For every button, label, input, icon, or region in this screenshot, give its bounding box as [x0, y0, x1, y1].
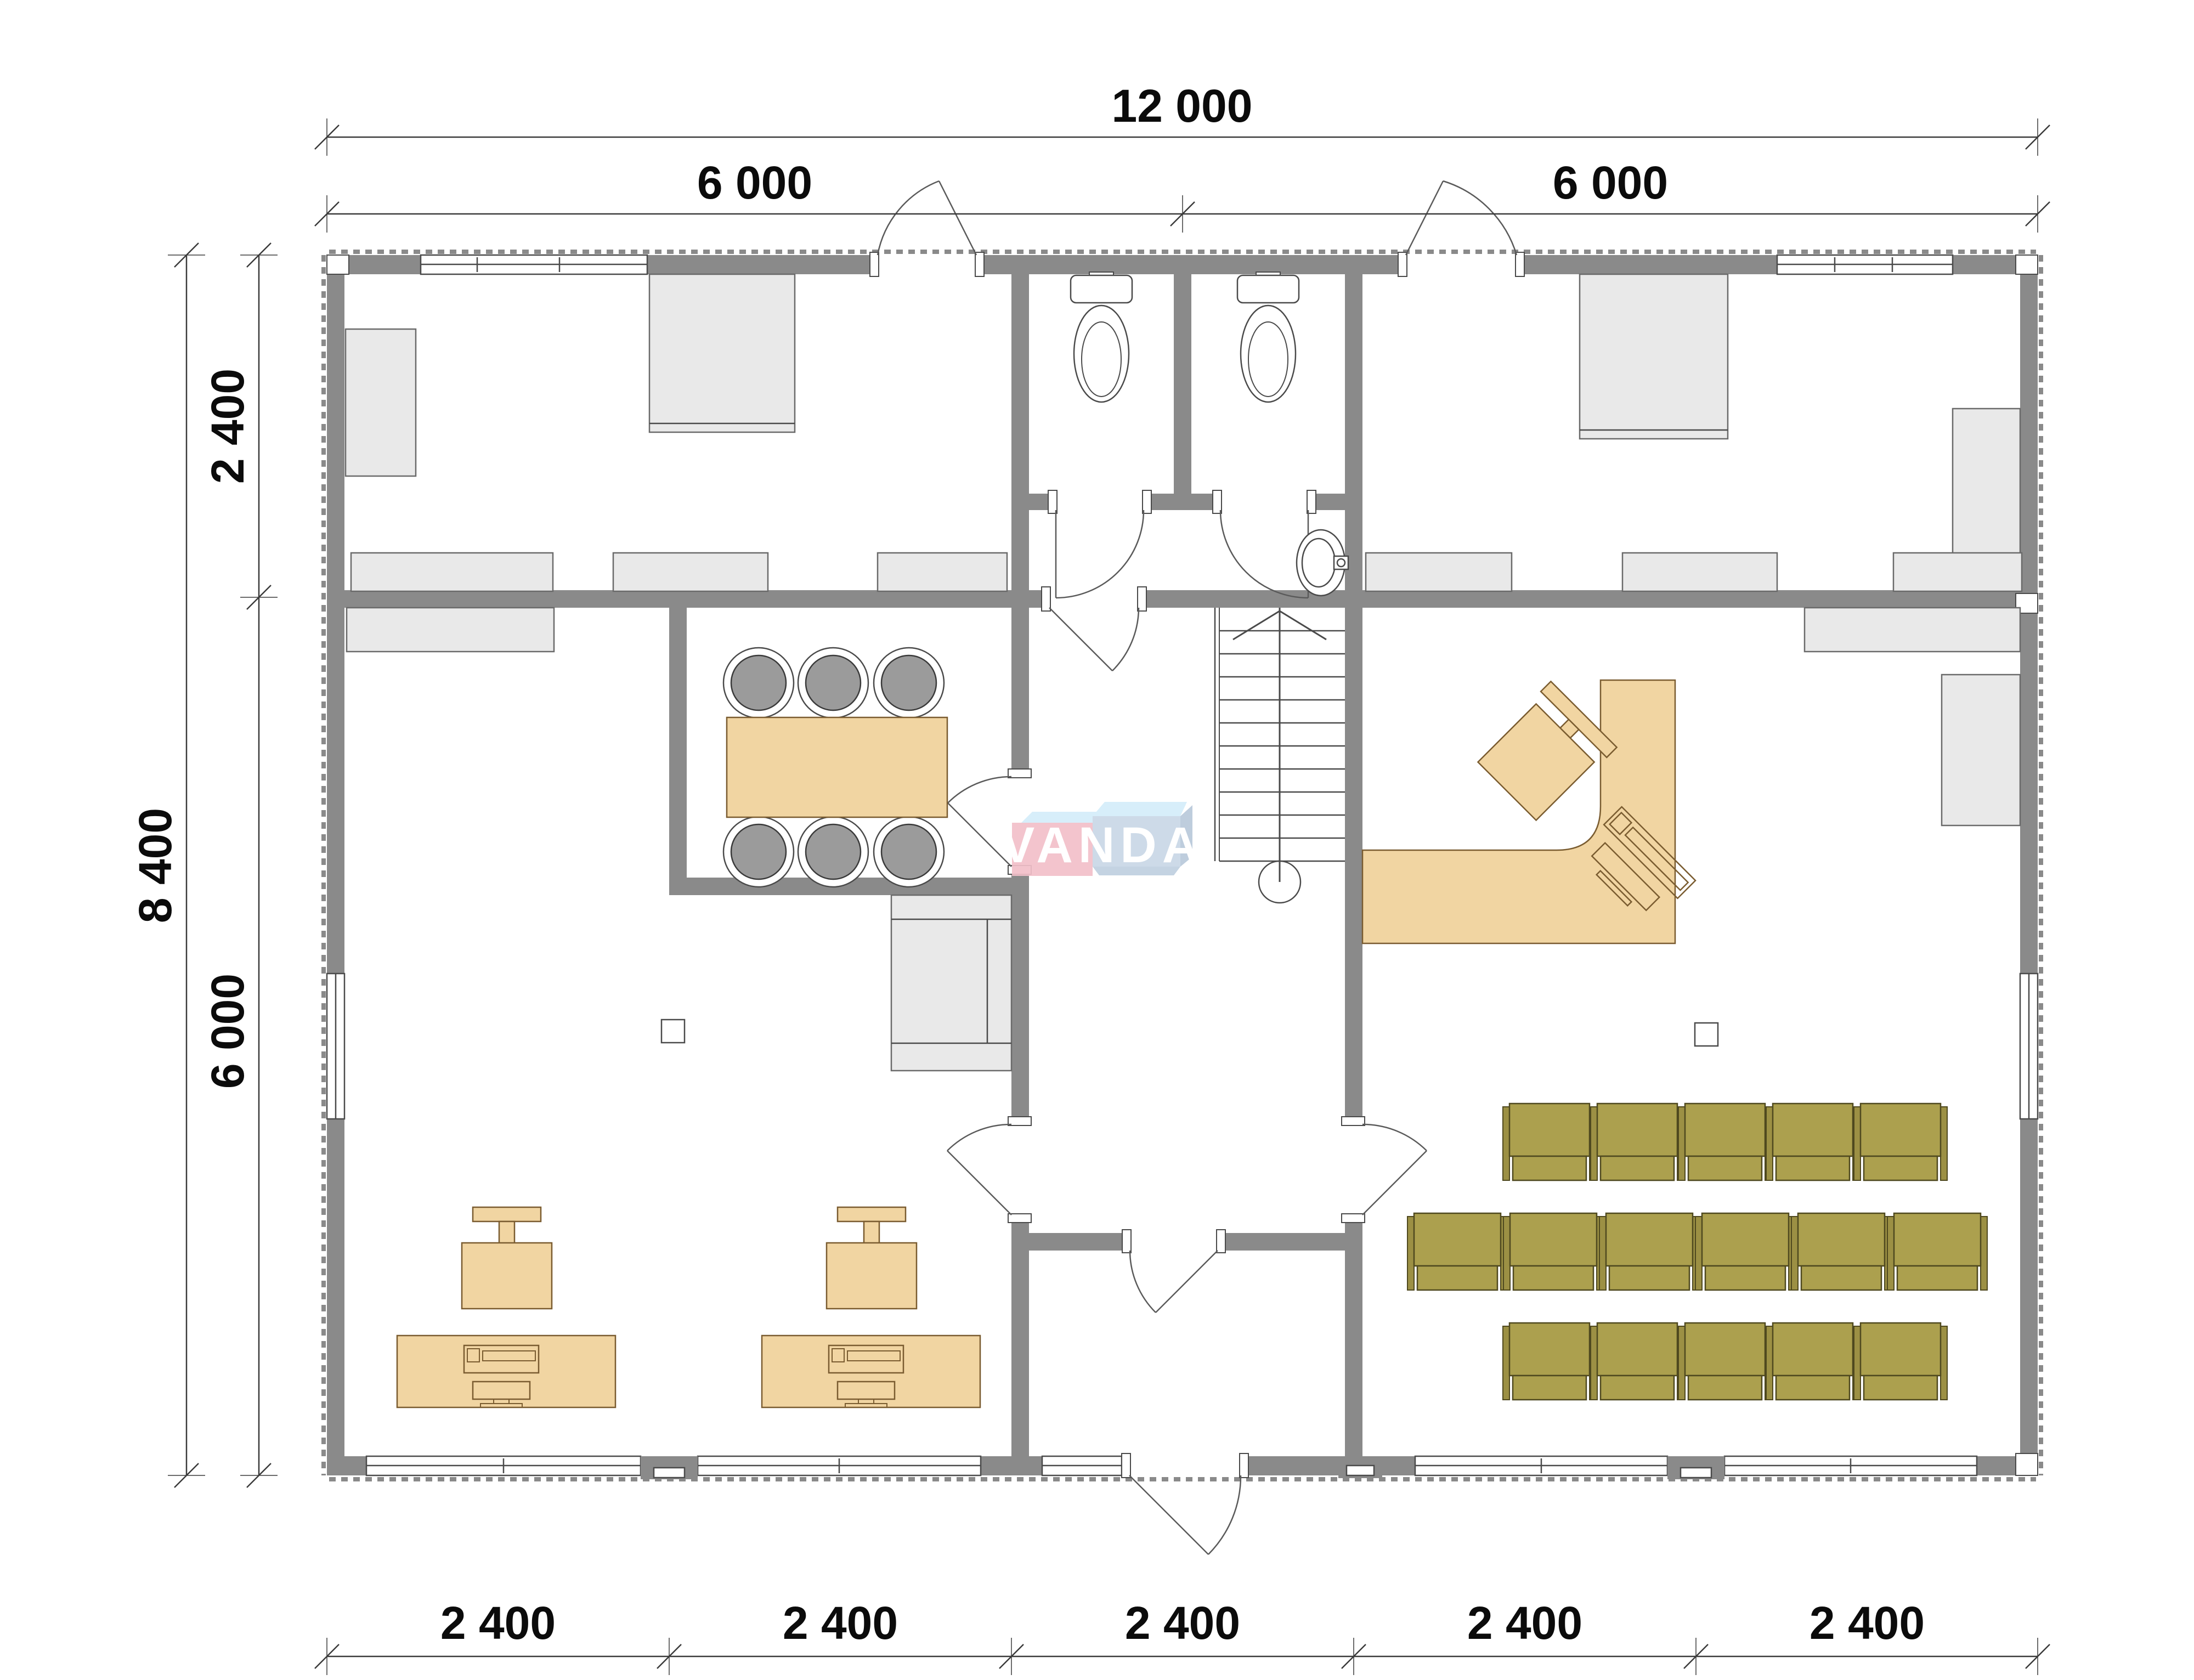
- dim-bottom-1: 2 400: [440, 1597, 556, 1649]
- floor-plan-sheet: VANDA 12 000 6 000 6 000 8 400 2 400 6 0…: [0, 0, 2194, 1680]
- seminar-chair: [1678, 1323, 1772, 1400]
- conference-chair: [874, 648, 944, 718]
- door-swing-icon: [1362, 1124, 1427, 1215]
- conference-chair: [874, 817, 944, 887]
- dim-bottom-2: 2 400: [783, 1597, 898, 1649]
- dim-left-total: 8 400: [129, 808, 181, 923]
- conference-chair: [798, 817, 868, 887]
- seminar-chair: [1791, 1213, 1891, 1290]
- seminar-chair: [1591, 1104, 1684, 1180]
- floor-plan-drawing: VANDA 12 000 6 000 6 000 8 400 2 400 6 0…: [0, 0, 2194, 1680]
- seminar-chair-rows: [1407, 1104, 1987, 1400]
- low-cabinet: [1805, 608, 2020, 652]
- seminar-chair: [1766, 1104, 1859, 1180]
- seminar-chair: [1854, 1104, 1947, 1180]
- reception-desk: [1362, 680, 1695, 943]
- door-swing-icon: [1049, 608, 1139, 671]
- door-swing-icon: [878, 181, 976, 255]
- low-cabinet: [1366, 553, 1512, 591]
- door-swing-icon: [1056, 510, 1144, 598]
- window-icon: [698, 1456, 981, 1475]
- sink-icon: [1297, 530, 1348, 596]
- window-icon: [421, 255, 647, 274]
- top-cabinet: [1580, 274, 1728, 439]
- seminar-chair: [1887, 1213, 1987, 1290]
- toilet-icon: [1237, 272, 1299, 402]
- wall-pier: [1667, 1456, 1724, 1479]
- copier-unit: [891, 895, 1011, 1071]
- seminar-chair: [1854, 1323, 1947, 1400]
- dim-top-total: 12 000: [1112, 80, 1253, 132]
- desk: [762, 1336, 980, 1407]
- door-swing-icon: [1220, 510, 1308, 598]
- window-icon: [1777, 255, 1953, 274]
- wall-cabinet: [1942, 675, 2020, 825]
- wall-pier: [641, 1456, 698, 1479]
- seminar-chair: [1503, 1104, 1596, 1180]
- door-swing-icon: [1130, 1251, 1218, 1313]
- window-icon: [1724, 1456, 1977, 1475]
- seminar-chair: [1503, 1213, 1603, 1290]
- wall-pier: [1338, 1456, 1382, 1478]
- low-cabinet: [1893, 553, 2022, 591]
- dim-top-left: 6 000: [697, 157, 812, 208]
- seminar-chair: [1766, 1323, 1859, 1400]
- office-chair: [1474, 681, 1616, 824]
- door-swing-icon: [1406, 181, 1517, 255]
- low-cabinet: [347, 608, 554, 652]
- dim-bottom-4: 2 400: [1467, 1597, 1582, 1649]
- floor-outlet-icon: [661, 1020, 685, 1043]
- logo-text: VANDA: [1001, 817, 1204, 873]
- seminar-chair: [1407, 1213, 1507, 1290]
- seminar-chair: [1599, 1213, 1699, 1290]
- desk-chair-back: [838, 1207, 906, 1221]
- wall-desk: [346, 329, 416, 476]
- desk: [397, 1336, 615, 1407]
- floor-outlet-icon: [1695, 1023, 1718, 1046]
- stairs-icon: [1215, 608, 1345, 903]
- window-icon: [327, 974, 344, 1119]
- window-icon: [1415, 1456, 1667, 1475]
- conference-chair: [723, 648, 794, 718]
- desk-chair-seat: [827, 1243, 917, 1309]
- logo-bevel: [1093, 802, 1187, 816]
- conference-chair: [798, 648, 868, 718]
- desk-chair-back: [473, 1207, 541, 1221]
- dim-top-right: 6 000: [1553, 157, 1668, 208]
- window-icon: [366, 1456, 641, 1475]
- conference-table: [727, 717, 947, 817]
- door-swing-icon: [1129, 1475, 1241, 1554]
- seminar-chair: [1503, 1323, 1596, 1400]
- window-icon: [1042, 1456, 1122, 1475]
- stairs: [1215, 608, 1345, 903]
- door-swing-icon: [947, 1124, 1011, 1215]
- dim-bottom-5: 2 400: [1810, 1597, 1925, 1649]
- dim-left-top: 2 400: [202, 369, 253, 484]
- conference-room: [723, 648, 947, 887]
- top-cabinet: [649, 274, 795, 432]
- dim-left-bottom: 6 000: [202, 974, 253, 1089]
- seminar-chair: [1678, 1104, 1772, 1180]
- workstations: [397, 1207, 980, 1407]
- workstation: [762, 1207, 980, 1407]
- desk-chair-seat: [462, 1243, 552, 1309]
- window-icon: [2020, 974, 2038, 1119]
- low-cabinet: [878, 553, 1007, 591]
- toilet-icon: [1071, 272, 1132, 402]
- low-cabinet: [351, 553, 553, 591]
- seminar-chair: [1695, 1213, 1795, 1290]
- low-cabinet: [1622, 553, 1777, 591]
- workstation: [397, 1207, 615, 1407]
- vanda-logo: VANDA: [1001, 802, 1204, 876]
- conference-chair: [723, 817, 794, 887]
- dim-bottom-3: 2 400: [1125, 1597, 1240, 1649]
- low-cabinet: [613, 553, 768, 591]
- seminar-chair: [1591, 1323, 1684, 1400]
